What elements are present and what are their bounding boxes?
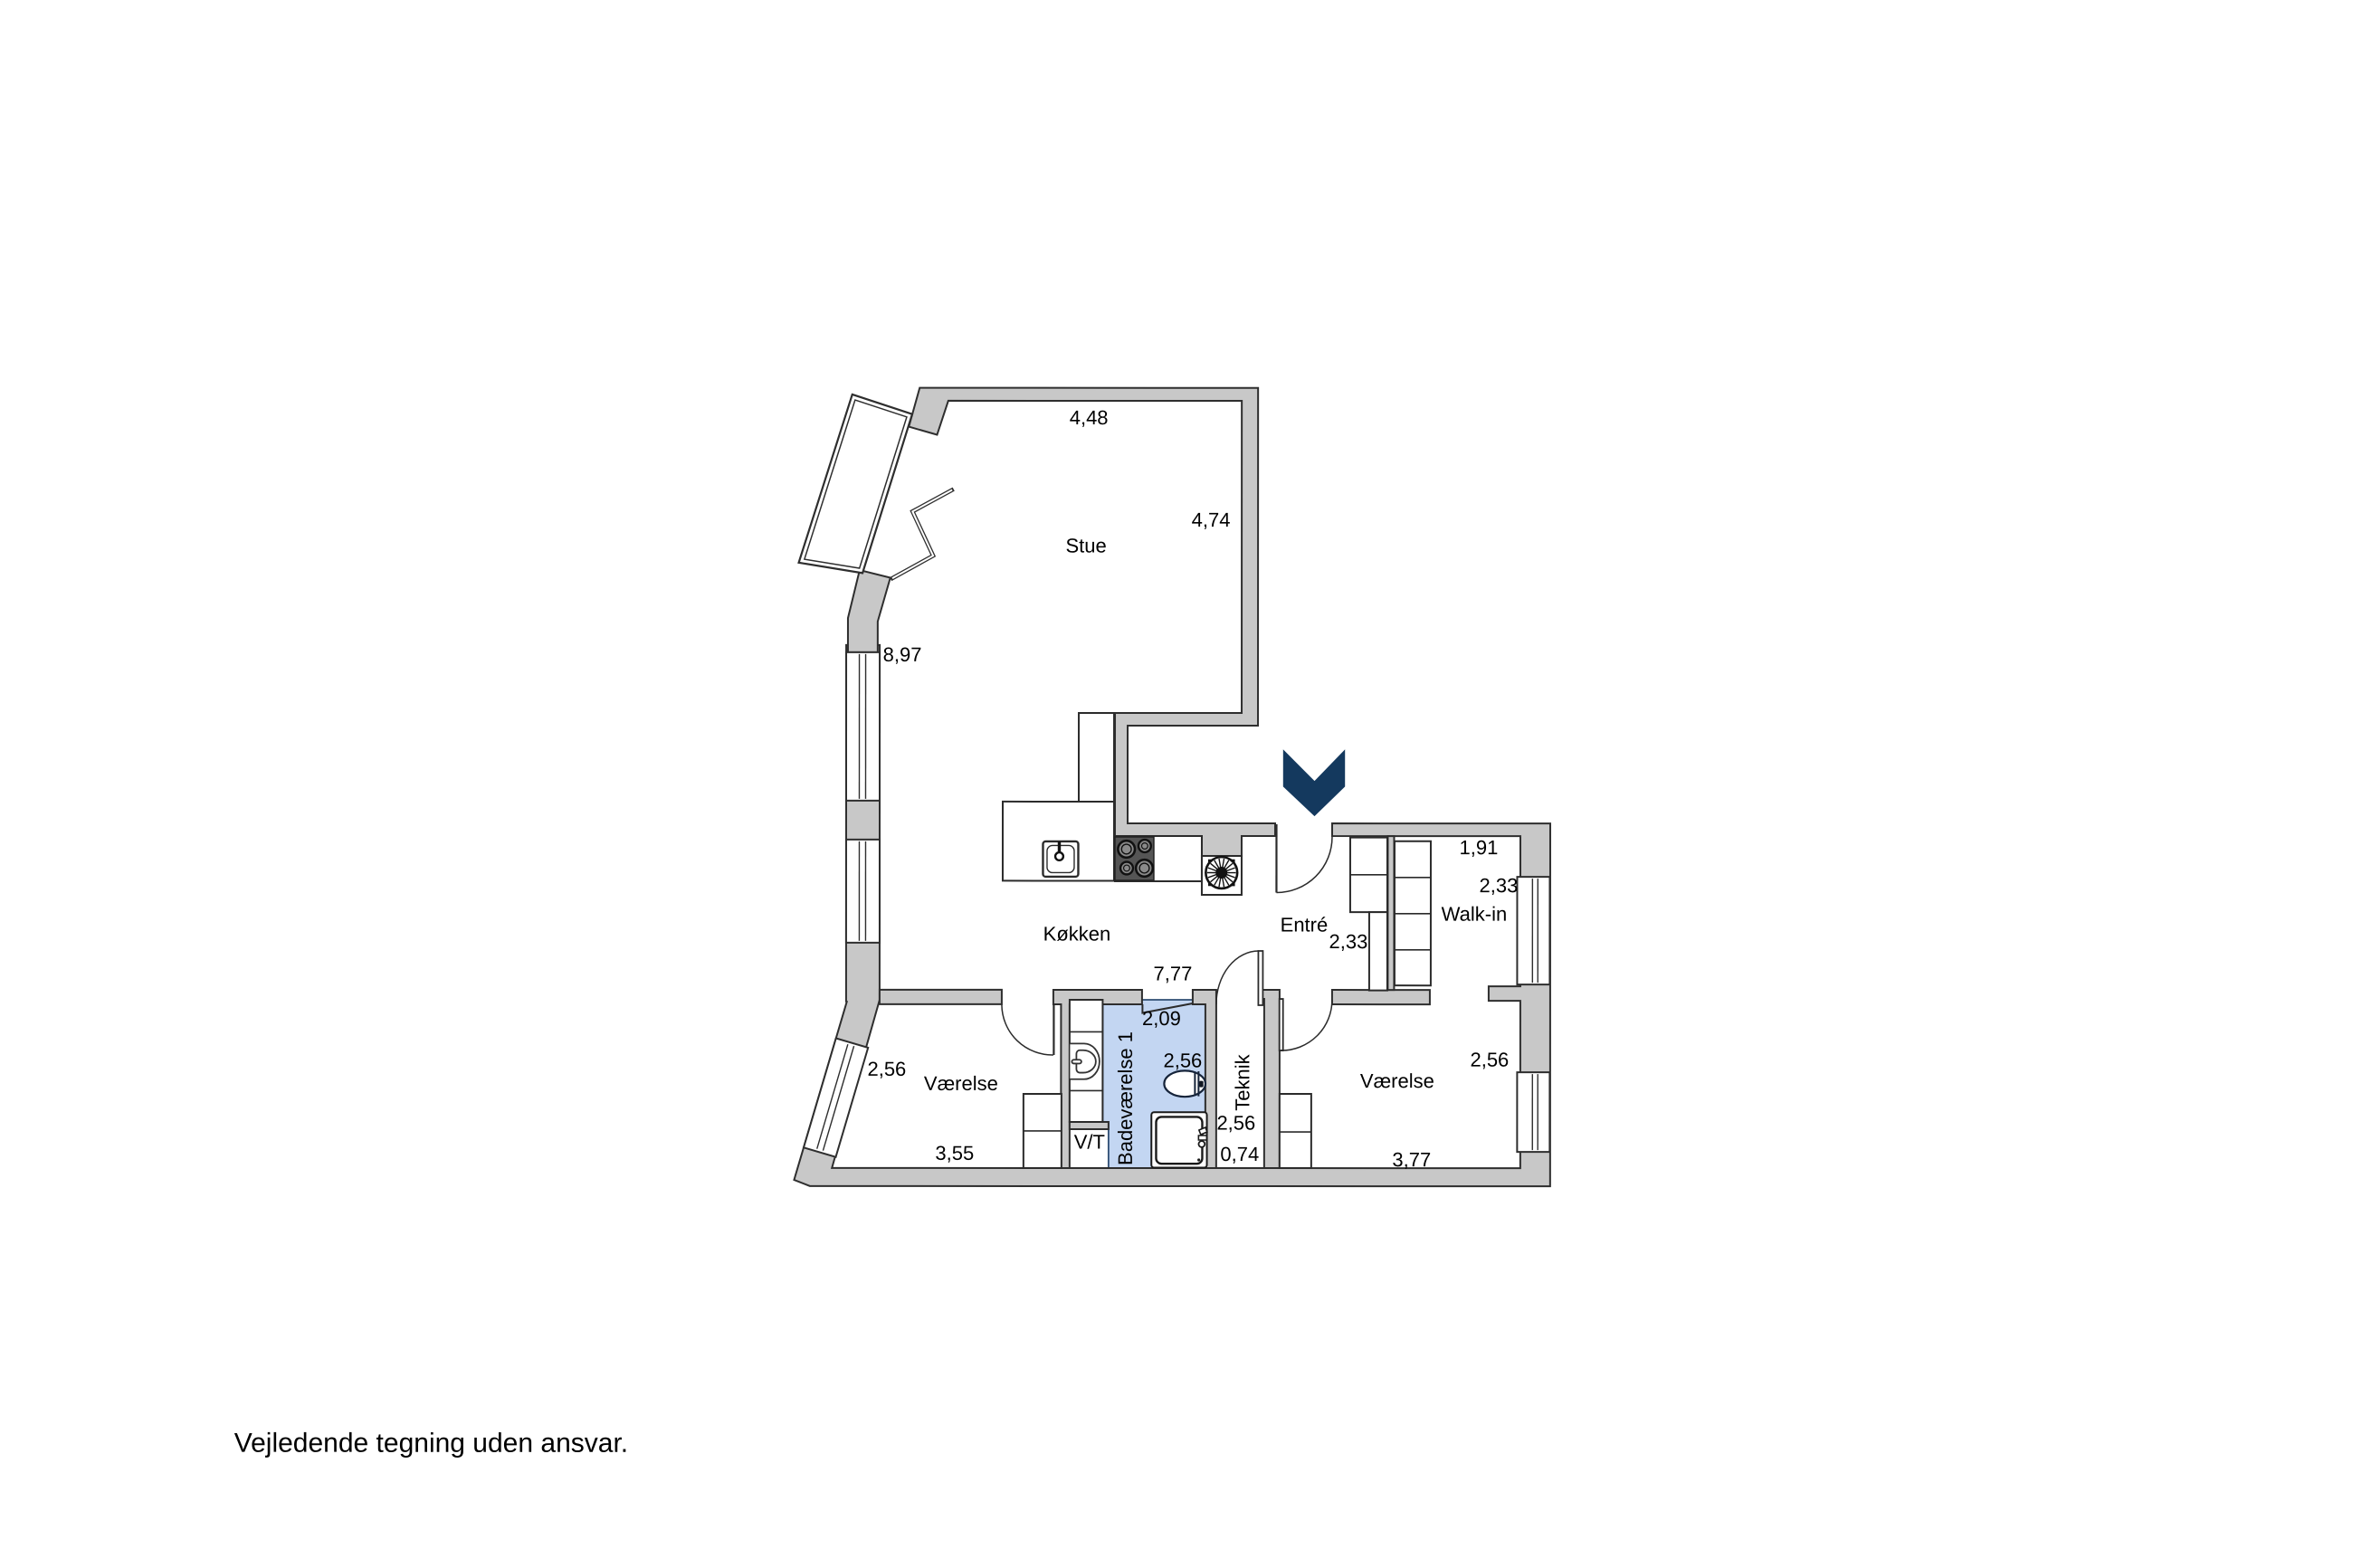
svg-text:Værelse: Værelse <box>924 1072 998 1095</box>
svg-text:0,74: 0,74 <box>1220 1143 1259 1165</box>
svg-text:Vejledende tegning uden ansvar: Vejledende tegning uden ansvar. <box>234 1429 628 1459</box>
svg-text:Køkken: Køkken <box>1043 922 1111 945</box>
svg-text:4,48: 4,48 <box>1070 406 1109 429</box>
svg-text:2,56: 2,56 <box>1470 1049 1509 1071</box>
svg-text:V/T: V/T <box>1074 1130 1105 1153</box>
svg-text:2,33: 2,33 <box>1480 874 1519 897</box>
svg-text:2,56: 2,56 <box>1163 1049 1202 1071</box>
svg-text:2,56: 2,56 <box>1216 1112 1255 1135</box>
svg-text:3,77: 3,77 <box>1392 1148 1431 1171</box>
svg-text:4,74: 4,74 <box>1192 508 1231 531</box>
svg-text:2,56: 2,56 <box>867 1058 906 1080</box>
svg-text:Walk-in: Walk-in <box>1442 903 1508 926</box>
svg-text:8,97: 8,97 <box>883 643 922 666</box>
svg-text:Værelse: Værelse <box>1360 1069 1434 1092</box>
svg-text:1,91: 1,91 <box>1460 836 1499 859</box>
svg-text:Entré: Entré <box>1281 914 1329 936</box>
svg-text:2,09: 2,09 <box>1142 1007 1181 1030</box>
svg-text:3,55: 3,55 <box>935 1142 974 1164</box>
svg-text:2,33: 2,33 <box>1329 930 1368 953</box>
svg-text:7,77: 7,77 <box>1154 962 1193 984</box>
svg-text:Badeværelse 1: Badeværelse 1 <box>1114 1031 1137 1165</box>
svg-text:Stue: Stue <box>1065 534 1106 556</box>
svg-text:Teknik: Teknik <box>1231 1053 1253 1110</box>
